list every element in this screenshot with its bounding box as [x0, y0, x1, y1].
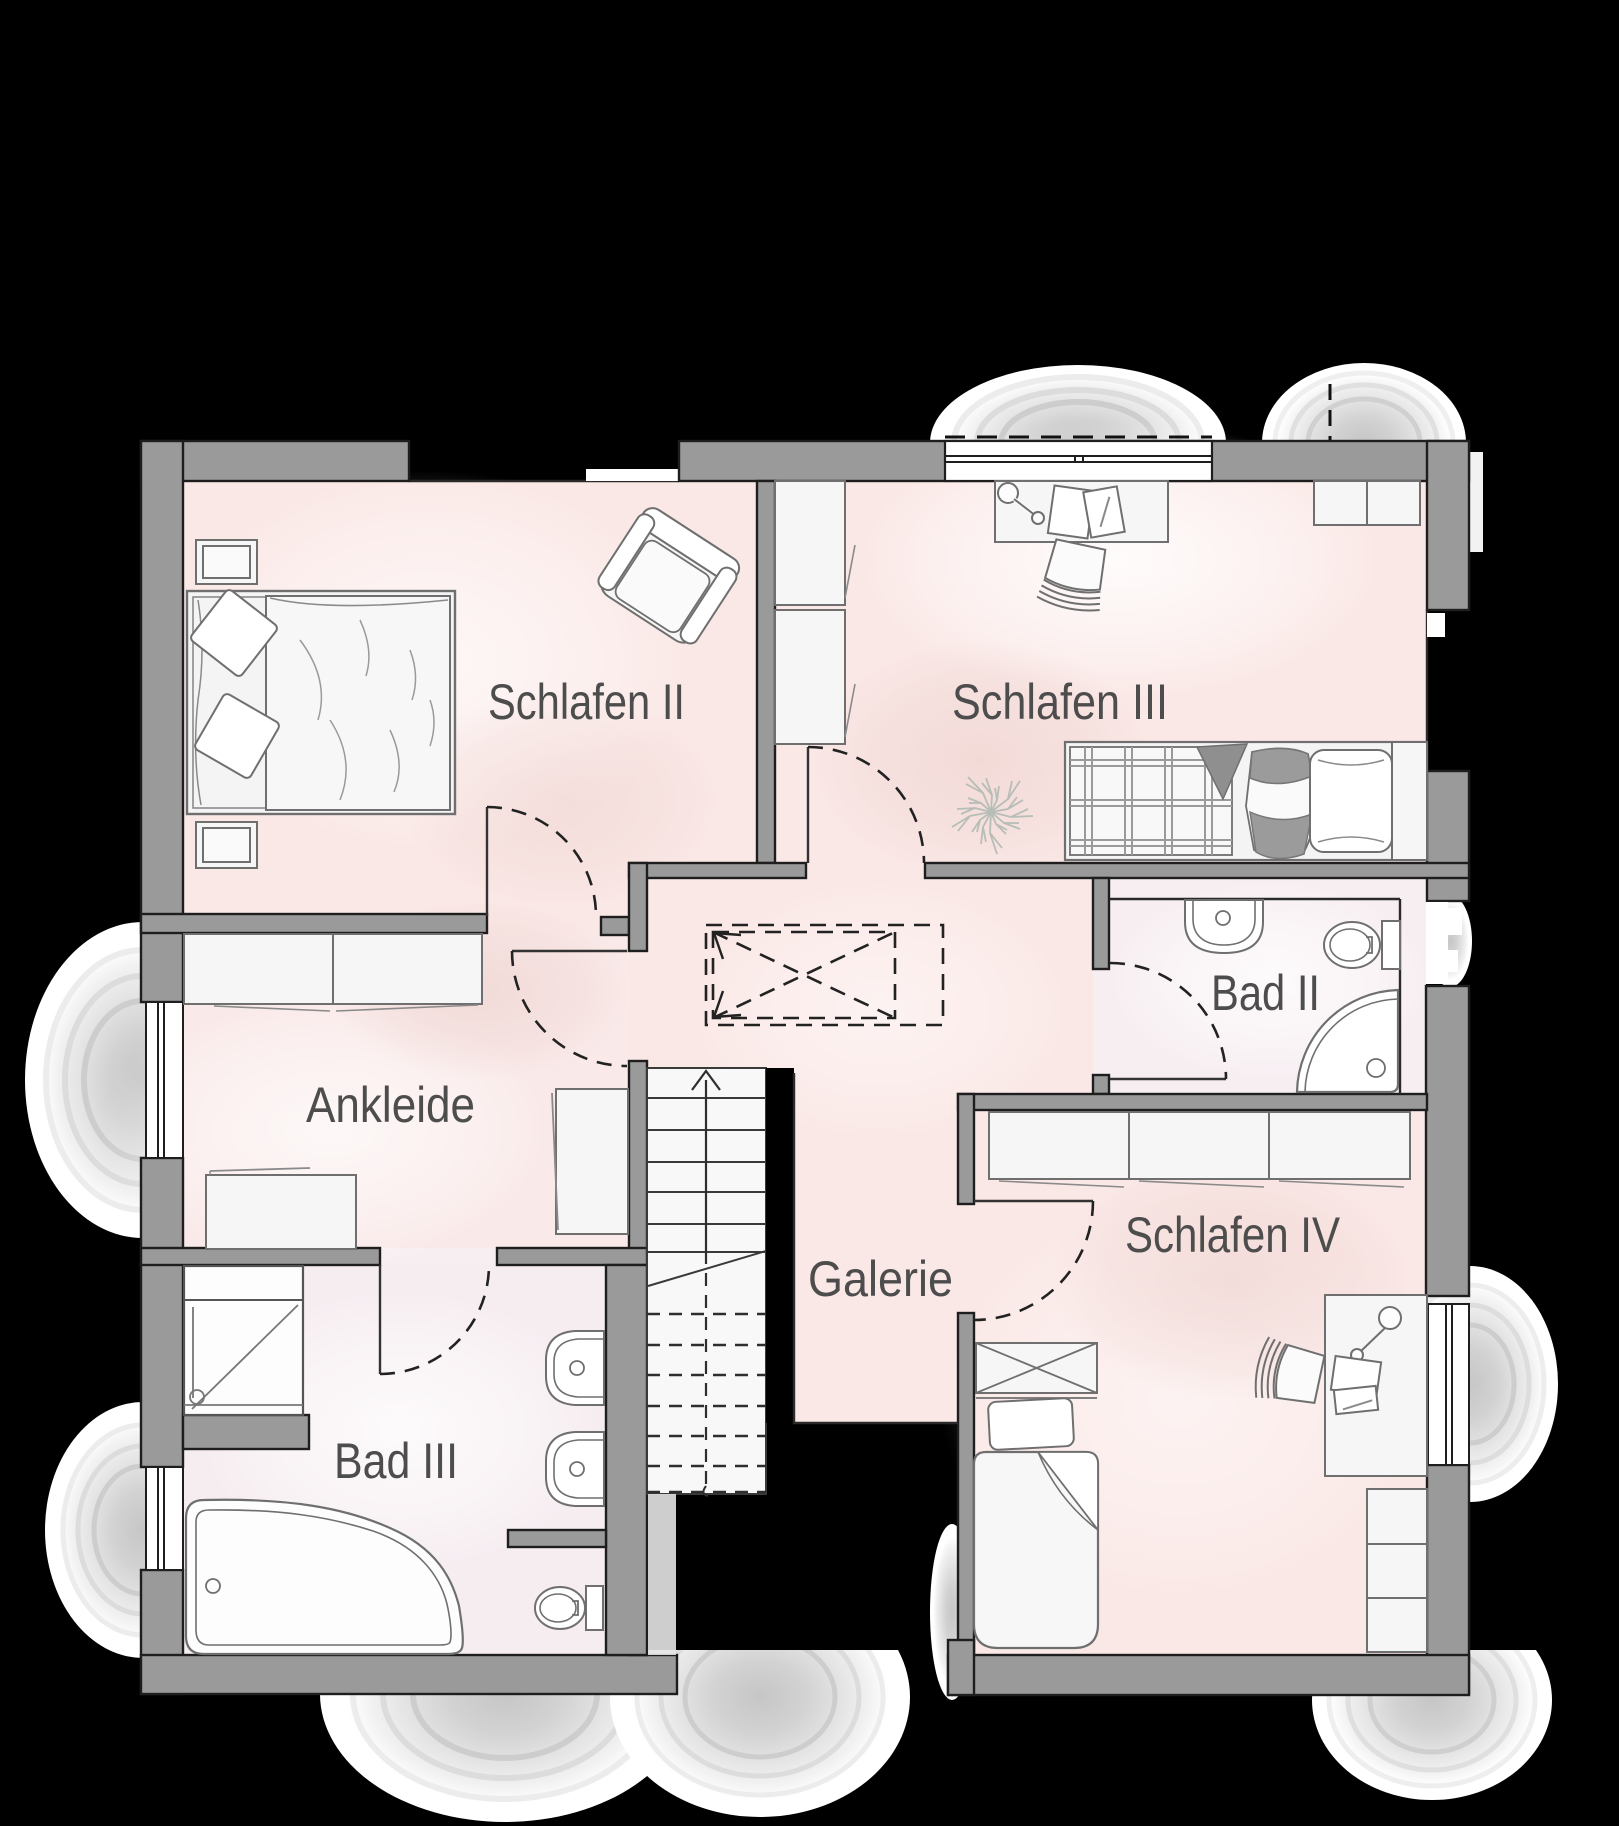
svg-text:Schlafen II: Schlafen II: [488, 674, 685, 730]
svg-text:Galerie: Galerie: [808, 1251, 953, 1307]
svg-text:Bad III: Bad III: [334, 1433, 458, 1489]
svg-text:Bad II: Bad II: [1211, 965, 1320, 1021]
svg-text:Schlafen IV: Schlafen IV: [1125, 1207, 1341, 1263]
svg-text:Schlafen III: Schlafen III: [952, 674, 1168, 730]
svg-text:Ankleide: Ankleide: [306, 1077, 475, 1133]
